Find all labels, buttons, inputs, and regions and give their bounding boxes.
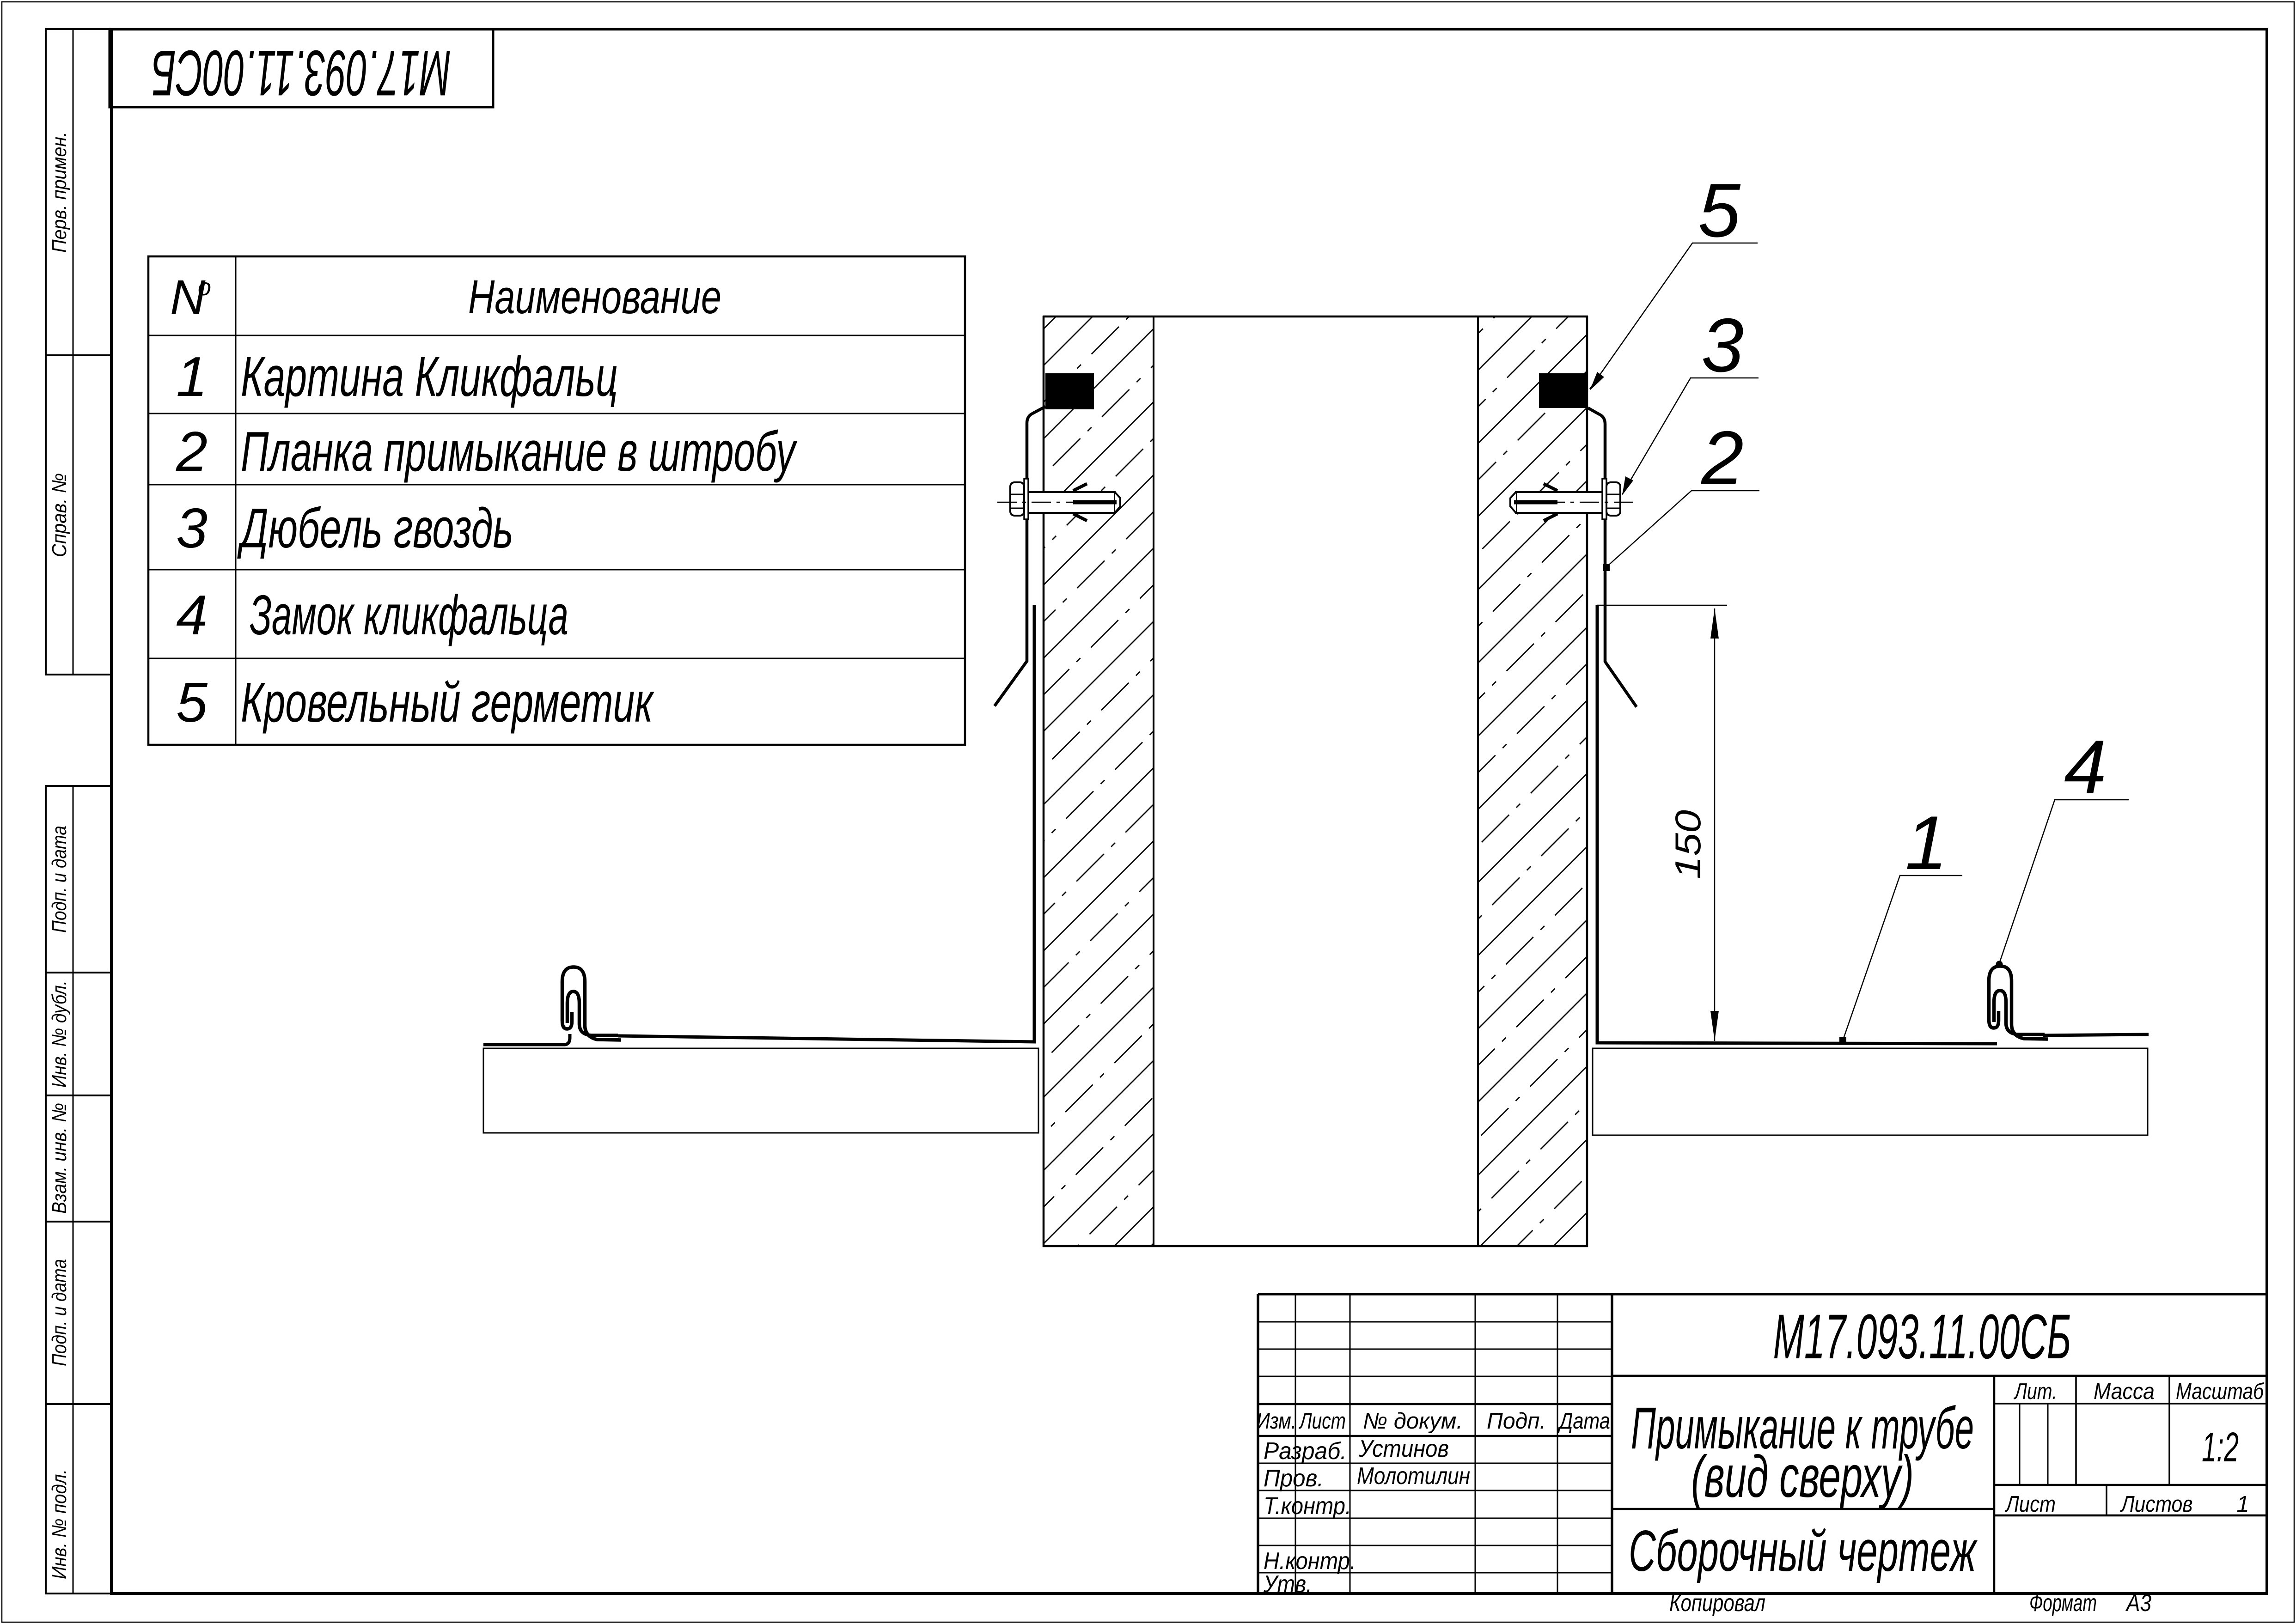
svg-text:Молотилин: Молотилин bbox=[1357, 1463, 1470, 1490]
svg-text:Замок кликфальца: Замок кликфальца bbox=[250, 584, 568, 646]
svg-text:Инв. № подл.: Инв. № подл. bbox=[48, 1469, 71, 1579]
svg-text:Подп.: Подп. bbox=[1487, 1409, 1546, 1434]
svg-text:Пров.: Пров. bbox=[1264, 1465, 1324, 1492]
svg-text:Перв. примен.: Перв. примен. bbox=[48, 132, 71, 253]
svg-text:Инв. № дубл.: Инв. № дубл. bbox=[48, 980, 71, 1088]
svg-text:Изм.: Изм. bbox=[1257, 1409, 1296, 1434]
svg-text:1: 1 bbox=[176, 345, 208, 408]
svg-text:1: 1 bbox=[1905, 800, 1948, 885]
svg-text:Подп. и дата: Подп. и дата bbox=[48, 826, 71, 933]
svg-text:А3: А3 bbox=[2125, 1590, 2151, 1617]
svg-text:Утв.: Утв. bbox=[1263, 1571, 1312, 1598]
svg-text:Сборочный чертеж: Сборочный чертеж bbox=[1629, 1519, 1978, 1583]
svg-text:5: 5 bbox=[176, 671, 208, 734]
svg-text:Лист: Лист bbox=[1299, 1409, 1346, 1434]
svg-text:Устинов: Устинов bbox=[1358, 1435, 1449, 1462]
svg-text:М17.093.11.00СБ: М17.093.11.00СБ bbox=[1773, 1302, 2071, 1372]
svg-text:4: 4 bbox=[176, 584, 208, 646]
svg-text:o: o bbox=[198, 274, 211, 301]
svg-text:Разраб.: Разраб. bbox=[1264, 1438, 1347, 1465]
svg-text:Дата: Дата bbox=[1557, 1409, 1610, 1434]
svg-text:Наименование: Наименование bbox=[468, 270, 721, 323]
svg-text:Формат: Формат bbox=[2029, 1590, 2097, 1617]
svg-text:Картина Кликфальц: Картина Кликфальц bbox=[241, 345, 618, 408]
svg-text:5: 5 bbox=[1698, 168, 1741, 253]
svg-text:Копировал: Копировал bbox=[1669, 1590, 1765, 1617]
svg-text:Взам. инв. №: Взам. инв. № bbox=[48, 1103, 71, 1214]
svg-text:Лист: Лист bbox=[2004, 1492, 2056, 1517]
svg-text:Лит.: Лит. bbox=[2014, 1379, 2057, 1404]
svg-text:2: 2 bbox=[1701, 415, 1744, 500]
svg-text:2: 2 bbox=[176, 420, 208, 483]
svg-text:№ докум.: № докум. bbox=[1363, 1409, 1463, 1434]
svg-text:(вид сверху): (вид сверху) bbox=[1691, 1444, 1914, 1510]
svg-text:3: 3 bbox=[1701, 303, 1744, 388]
svg-text:Планка примыкание в штробу: Планка примыкание в штробу bbox=[241, 420, 798, 483]
svg-text:3: 3 bbox=[176, 497, 208, 560]
svg-text:1:2: 1:2 bbox=[2202, 1424, 2239, 1471]
svg-text:Дюбель гвоздь: Дюбель гвоздь bbox=[237, 497, 513, 560]
svg-text:М17.093.11.00СБ: М17.093.11.00СБ bbox=[152, 37, 451, 109]
svg-text:Масса: Масса bbox=[2094, 1379, 2155, 1404]
svg-text:Подп. и дата: Подп. и дата bbox=[48, 1259, 71, 1366]
svg-text:Листов: Листов bbox=[2120, 1492, 2193, 1517]
svg-text:1: 1 bbox=[2236, 1492, 2249, 1517]
svg-text:Т.контр.: Т.контр. bbox=[1264, 1493, 1351, 1520]
svg-text:Справ. №: Справ. № bbox=[48, 473, 71, 557]
svg-text:Масштаб: Масштаб bbox=[2176, 1379, 2264, 1404]
svg-text:4: 4 bbox=[2064, 724, 2107, 809]
svg-text:Кровельный герметик: Кровельный герметик bbox=[241, 671, 654, 734]
svg-text:150: 150 bbox=[1667, 810, 1708, 879]
